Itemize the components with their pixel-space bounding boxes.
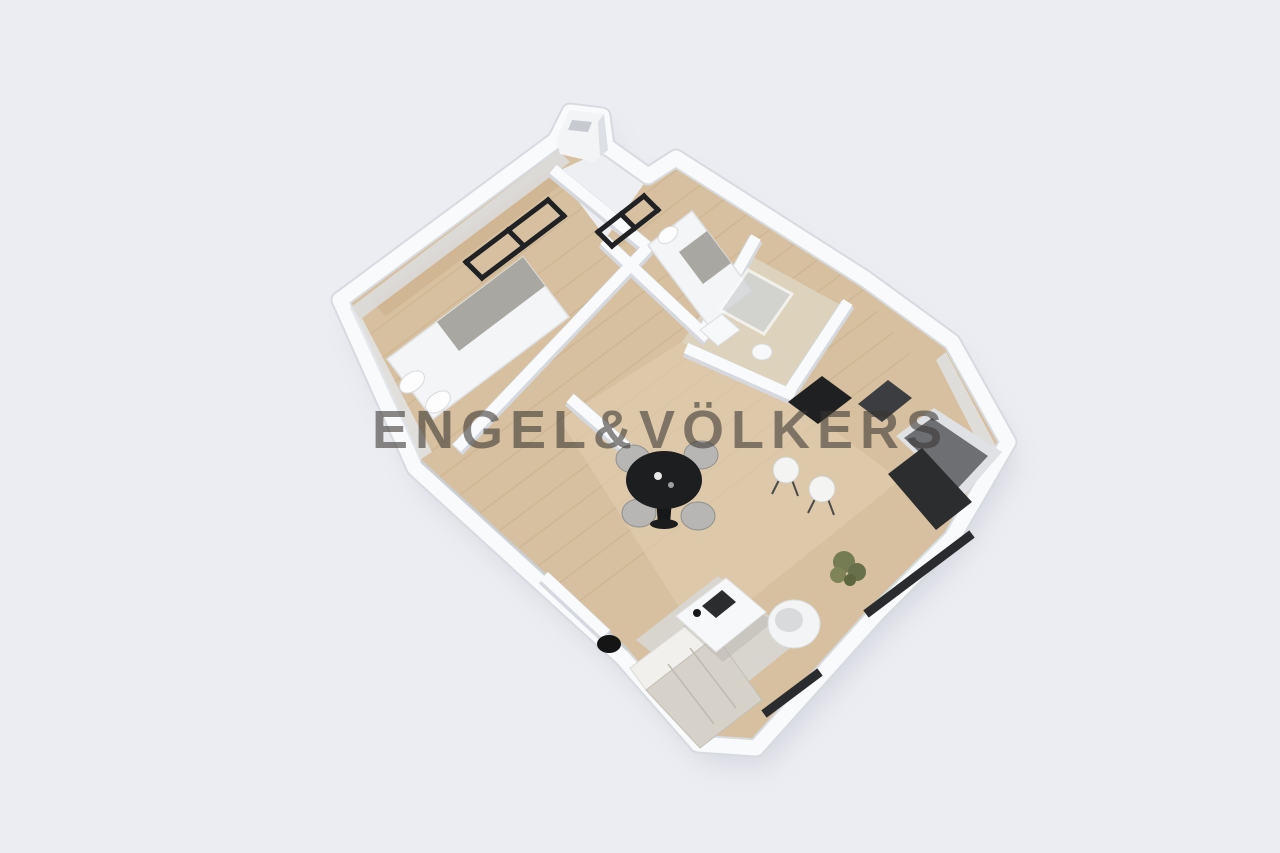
stool: [773, 457, 799, 483]
table-decor: [693, 609, 701, 617]
table-decor: [668, 482, 674, 488]
floor-plan-render: [0, 0, 1280, 853]
armchair: [768, 600, 820, 648]
round-dining-table: [626, 451, 702, 509]
toilet: [752, 344, 772, 360]
dining-table-base: [650, 519, 678, 529]
stool: [809, 476, 835, 502]
dining-chair: [681, 502, 715, 530]
table-decor: [654, 472, 662, 480]
floor-plan-stage: ENGEL&VÖLKERS: [0, 0, 1280, 853]
tv-unit: [597, 635, 621, 653]
